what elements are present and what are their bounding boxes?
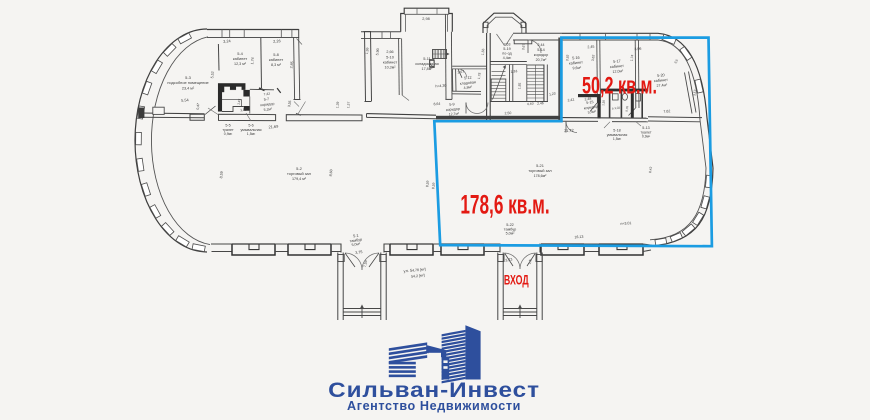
svg-text:0,47: 0,47 <box>196 103 201 110</box>
svg-text:5-16: 5-16 <box>572 56 580 61</box>
svg-text:кабинет: кабинет <box>233 56 248 61</box>
svg-text:5,54: 5,54 <box>181 98 189 103</box>
svg-text:9,6м²: 9,6м² <box>572 66 582 71</box>
svg-text:1,5м²: 1,5м² <box>247 132 256 136</box>
svg-text:1,78: 1,78 <box>477 72 482 79</box>
svg-text:3,67: 3,67 <box>521 43 526 50</box>
svg-text:торговый зал: торговый зал <box>287 171 311 176</box>
svg-text:5-20: 5-20 <box>657 73 665 78</box>
svg-text:2,53: 2,53 <box>504 43 511 47</box>
svg-text:Агентство Недвижимости: Агентство Недвижимости <box>347 399 521 413</box>
svg-text:8,60: 8,60 <box>329 169 334 176</box>
svg-text:кабинет: кабинет <box>269 57 284 62</box>
svg-text:7,62: 7,62 <box>663 109 670 114</box>
svg-text:1,99: 1,99 <box>365 47 370 54</box>
svg-text:ВХОД: ВХОД <box>504 274 529 288</box>
svg-text:8,59: 8,59 <box>425 180 430 187</box>
svg-text:7,42: 7,42 <box>263 92 270 97</box>
svg-text:1,5м²: 1,5м² <box>613 137 622 141</box>
svg-text:5-7: 5-7 <box>264 97 270 102</box>
svg-text:5,90: 5,90 <box>375 48 380 55</box>
svg-text:5-12: 5-12 <box>464 76 472 81</box>
svg-text:21,69: 21,69 <box>268 124 278 130</box>
svg-text:1,55: 1,55 <box>481 48 486 55</box>
svg-text:2,98: 2,98 <box>422 17 429 21</box>
svg-text:5-22: 5-22 <box>506 223 514 227</box>
svg-text:5,52: 5,52 <box>210 71 215 78</box>
svg-text:5-6: 5-6 <box>248 124 253 128</box>
svg-text:1,74: 1,74 <box>630 54 635 61</box>
svg-text:179,4 м²: 179,4 м² <box>292 177 307 181</box>
svg-text:0,9м²: 0,9м² <box>224 132 233 136</box>
svg-text:21,72: 21,72 <box>564 128 574 133</box>
svg-text:3,62: 3,62 <box>591 54 596 61</box>
svg-text:8,59: 8,59 <box>431 182 436 189</box>
svg-text:178,6м²: 178,6м² <box>534 174 547 178</box>
svg-text:2,42: 2,42 <box>567 98 574 103</box>
svg-text:1,39: 1,39 <box>335 101 340 108</box>
svg-text:16,13: 16,13 <box>574 235 583 240</box>
svg-text:торговый зал: торговый зал <box>528 169 551 173</box>
svg-text:2,45: 2,45 <box>587 45 594 50</box>
svg-text:4,4м²: 4,4м² <box>503 56 512 60</box>
svg-text:23,4 м²: 23,4 м² <box>182 87 195 91</box>
svg-text:1,85: 1,85 <box>517 82 522 89</box>
svg-text:а 1,02: а 1,02 <box>612 106 621 111</box>
svg-text:10,3м²: 10,3м² <box>385 66 397 70</box>
svg-text:1,74: 1,74 <box>250 57 255 64</box>
svg-text:h=4,30: h=4,30 <box>435 84 446 89</box>
svg-text:0,9м²: 0,9м² <box>642 135 651 139</box>
svg-text:0,76: 0,76 <box>625 105 630 112</box>
svg-text:8,3 м²: 8,3 м² <box>271 63 282 67</box>
svg-text:1,08: 1,08 <box>240 108 247 113</box>
svg-text:8,64: 8,64 <box>433 102 440 107</box>
svg-text:5-18: 5-18 <box>613 129 620 133</box>
svg-text:п=3,01: п=3,01 <box>620 221 631 226</box>
svg-text:12,3 м²: 12,3 м² <box>234 62 247 66</box>
svg-text:1,5: 1,5 <box>528 259 533 264</box>
svg-text:1,57: 1,57 <box>346 101 351 108</box>
svg-text:5-9: 5-9 <box>449 102 455 106</box>
svg-text:5-13: 5-13 <box>642 126 649 130</box>
svg-text:5-19: 5-19 <box>503 47 511 51</box>
svg-text:5-21: 5-21 <box>536 163 544 168</box>
svg-text:2,50: 2,50 <box>504 111 511 115</box>
svg-text:178,6 кв.м.: 178,6 кв.м. <box>460 190 549 220</box>
svg-text:5-5: 5-5 <box>225 124 230 128</box>
svg-text:2,44: 2,44 <box>538 43 545 47</box>
svg-text:20,7м²: 20,7м² <box>536 58 547 62</box>
svg-text:50,2 кв.м.: 50,2 кв.м. <box>582 72 657 99</box>
svg-text:8,59: 8,59 <box>219 171 224 178</box>
svg-text:кабинет: кабинет <box>383 60 398 65</box>
svg-text:2,66: 2,66 <box>386 50 393 54</box>
svg-text:складская-ая: складская-ая <box>415 62 438 66</box>
svg-text:1,33: 1,33 <box>510 69 517 74</box>
svg-text:3,24: 3,24 <box>223 39 231 44</box>
svg-text:0,60: 0,60 <box>527 102 534 107</box>
svg-text:5,0м²: 5,0м² <box>506 232 515 236</box>
svg-text:коридор: коридор <box>534 53 549 57</box>
svg-text:1,50: 1,50 <box>601 99 606 106</box>
svg-text:2,26: 2,26 <box>273 39 281 44</box>
svg-text:подсобное помещение: подсобное помещение <box>167 80 208 85</box>
svg-text:2,46: 2,46 <box>537 101 544 106</box>
svg-text:2,85: 2,85 <box>289 61 294 68</box>
svg-text:5-14: 5-14 <box>537 48 545 52</box>
svg-text:5-17: 5-17 <box>613 59 621 64</box>
svg-text:3,92: 3,92 <box>565 54 570 61</box>
